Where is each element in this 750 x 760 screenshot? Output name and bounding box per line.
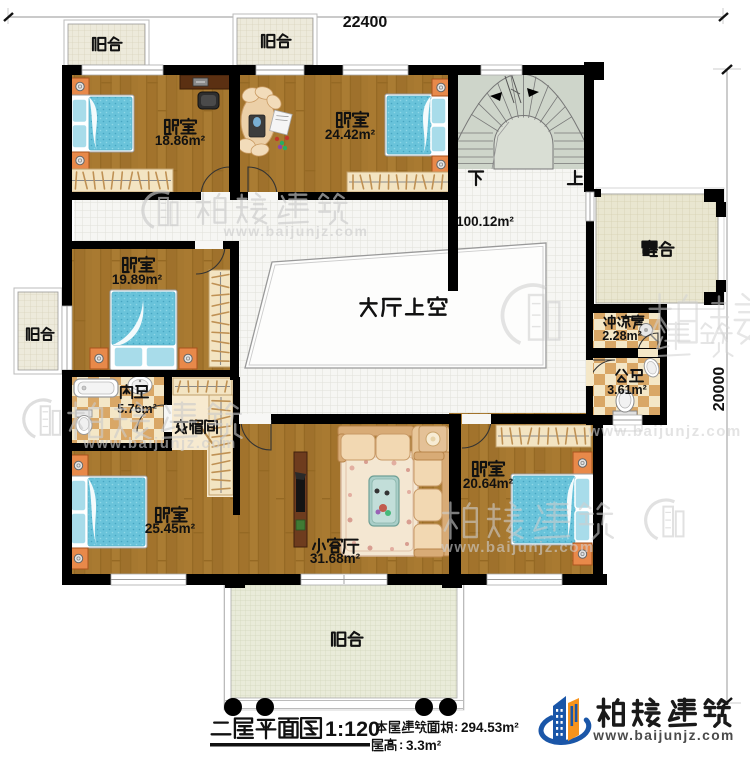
svg-text:31.68m²: 31.68m² bbox=[310, 551, 361, 566]
svg-text:22400: 22400 bbox=[343, 14, 388, 31]
svg-text:www.baijunjz.com: www.baijunjz.com bbox=[592, 728, 734, 743]
svg-text:20.64m²: 20.64m² bbox=[463, 476, 514, 491]
svg-text:24.42m²: 24.42m² bbox=[325, 127, 376, 142]
svg-text::: : bbox=[399, 737, 403, 752]
svg-text:294.53m²: 294.53m² bbox=[461, 720, 519, 735]
svg-text:www.baijunjz.com: www.baijunjz.com bbox=[440, 539, 594, 556]
svg-text:25.45m²: 25.45m² bbox=[145, 521, 196, 536]
svg-text:1:120: 1:120 bbox=[325, 717, 380, 741]
svg-text:www.baijunjz.com: www.baijunjz.com bbox=[223, 223, 369, 239]
svg-text:20000: 20000 bbox=[711, 367, 728, 412]
svg-text:www.baijunjz.com: www.baijunjz.com bbox=[82, 435, 236, 452]
svg-text:19.89m²: 19.89m² bbox=[112, 272, 163, 287]
svg-text:3.3m²: 3.3m² bbox=[406, 738, 442, 753]
svg-text:18.86m²: 18.86m² bbox=[155, 133, 206, 148]
svg-text:www.baijunjz.com: www.baijunjz.com bbox=[587, 423, 741, 440]
svg-text:2.28m²: 2.28m² bbox=[602, 329, 642, 343]
svg-text:100.12m²: 100.12m² bbox=[456, 214, 514, 229]
svg-text::: : bbox=[454, 719, 458, 734]
svg-text:3.61m²: 3.61m² bbox=[607, 383, 647, 397]
